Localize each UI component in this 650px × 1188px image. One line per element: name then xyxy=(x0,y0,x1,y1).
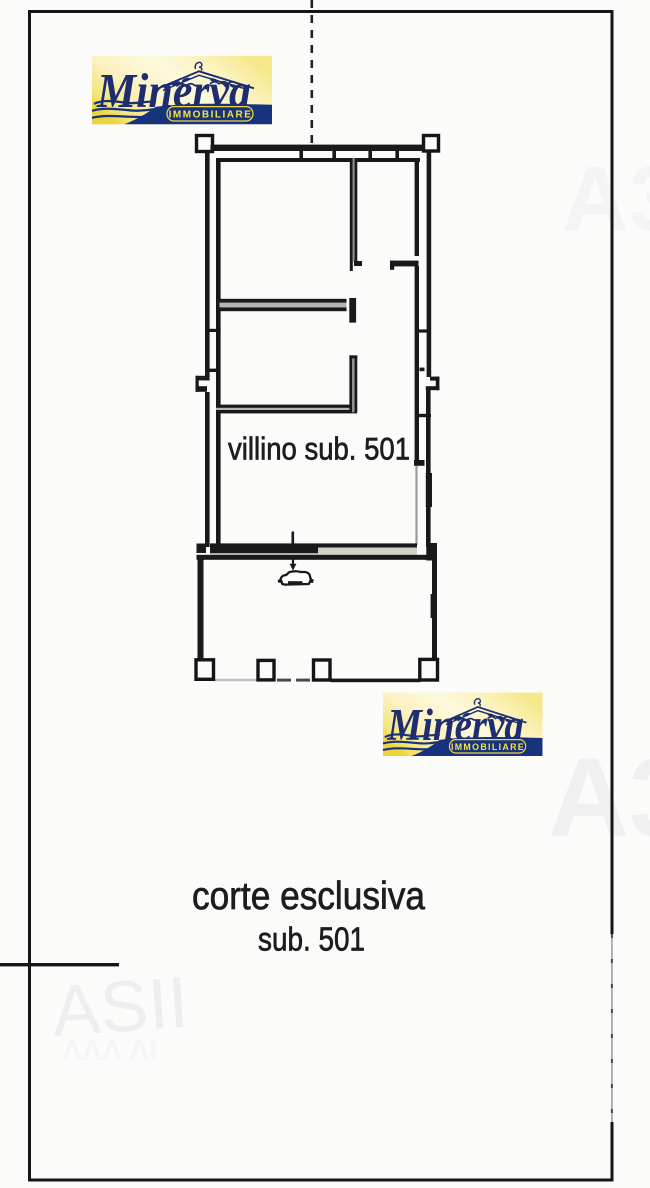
svg-text:corte esclusiva: corte esclusiva xyxy=(192,875,426,918)
svg-text:A3: A3 xyxy=(562,148,650,250)
svg-text:sub. 501: sub. 501 xyxy=(258,922,365,959)
svg-text:ΛΛΛ ΛI: ΛΛΛ ΛI xyxy=(62,1034,158,1067)
svg-text:A3: A3 xyxy=(548,735,650,860)
svg-text:villino sub. 501: villino sub. 501 xyxy=(228,431,410,467)
